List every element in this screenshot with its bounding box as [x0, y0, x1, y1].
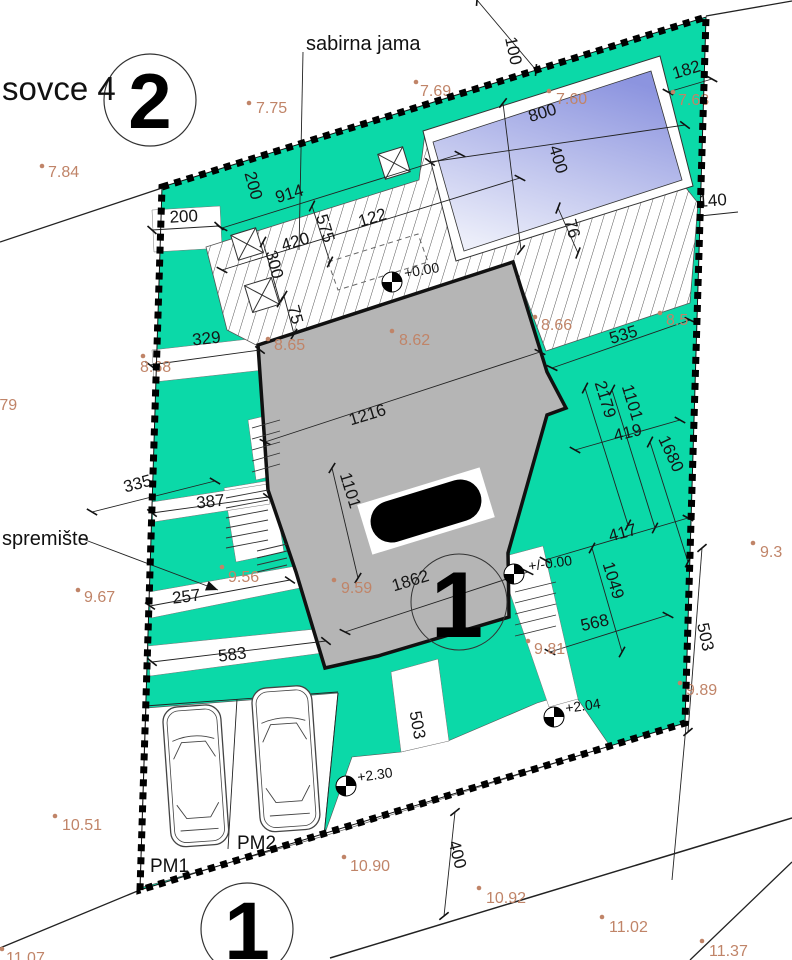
elevation-point-dot	[547, 89, 552, 94]
dimension-tick	[707, 76, 718, 82]
elevation-label: 7.75	[256, 100, 287, 117]
elevation-point-dot	[332, 578, 337, 583]
elevation-point-dot	[678, 681, 683, 686]
car-pm2	[251, 685, 321, 833]
elevation-label: 9.56	[228, 569, 259, 586]
parcel-1-bottom-number: 1	[224, 886, 270, 960]
elevation-label: 11.37	[709, 943, 748, 960]
elevation-point-dot	[671, 90, 676, 95]
elevation-label: 8.65	[274, 337, 305, 354]
elevation-label: 8.5	[666, 312, 688, 329]
elevation-point-dot	[342, 855, 347, 860]
elevation-point-dot	[533, 315, 538, 320]
elevation-label: 11.07	[6, 950, 45, 960]
dimension-label: 335	[121, 471, 153, 497]
level-marker-icon	[382, 272, 402, 292]
elevation-label: 8.66	[541, 317, 572, 334]
elevation-point-dot	[53, 814, 58, 819]
plan-line	[672, 726, 686, 880]
site-plan-canvas: +0.00+/-0.00+2.04+2.30 20020091457542012…	[0, 0, 792, 960]
elevation-point-dot	[700, 939, 705, 944]
level-marker-icon	[504, 564, 524, 584]
elevation-point-dot	[220, 565, 225, 570]
elevation-label: 8.79	[0, 397, 17, 414]
elevation-label: 7.60	[556, 91, 587, 108]
elevation-label: 7.84	[48, 164, 79, 181]
elevation-label: 10.92	[486, 890, 526, 907]
plan-line	[0, 188, 162, 242]
elevation-point-dot	[266, 337, 271, 342]
car-pm1	[162, 704, 230, 848]
elevation-point-dot	[390, 329, 395, 334]
elevation-point-dot	[526, 639, 531, 644]
site-plan-drawing: +0.00+/-0.00+2.04+2.30 20020091457542012…	[0, 0, 792, 960]
spremiste-label: spremište	[2, 528, 89, 550]
elevation-label: 10.90	[350, 858, 390, 875]
elevation-label: 9.3	[760, 544, 782, 561]
dimension-label: 257	[171, 585, 201, 607]
plan-line	[0, 890, 140, 948]
elevation-point-dot	[751, 541, 756, 546]
dimension-tick	[476, 0, 477, 6]
elevation-point-dot	[40, 164, 45, 169]
elevation-label: 9.59	[341, 580, 372, 597]
parcel-1-center-number: 1	[431, 552, 483, 657]
elevation-point-dot	[477, 886, 482, 891]
elevation-point-dot	[0, 947, 4, 952]
elevation-point-dot	[414, 80, 419, 85]
level-marker-icon	[336, 776, 356, 796]
sabirna-jama-label: sabirna jama	[306, 33, 421, 55]
dimension-label: 503	[693, 621, 717, 653]
plan-line	[700, 212, 738, 216]
street-label: sovce 4	[2, 70, 116, 107]
dimension-label: 387	[195, 491, 225, 513]
elevation-point-dot	[600, 915, 605, 920]
elevation-label: 9.81	[534, 641, 565, 658]
elevation-label: 11.02	[609, 919, 648, 936]
elevation-point-dot	[247, 101, 252, 106]
level-marker-icon	[544, 707, 564, 727]
elevation-label: 9.89	[686, 682, 717, 699]
elevation-label: 8.62	[399, 332, 430, 349]
parking-stall-pm2-label: PM2	[237, 833, 276, 854]
dimension-label: 400	[444, 838, 470, 870]
elevation-label: 9.67	[84, 589, 115, 606]
elevation-point-dot	[658, 311, 663, 316]
elevation-point-dot	[76, 588, 81, 593]
plan-line	[706, 1, 792, 16]
dimension-label: 329	[191, 328, 221, 350]
elevation-point-dot	[141, 354, 146, 359]
dimension-label: 200	[169, 206, 198, 226]
dimension-label: 100	[501, 35, 525, 67]
plan-line	[330, 818, 792, 958]
parcel-2-number: 2	[128, 57, 171, 145]
elevation-label: 7.69	[420, 83, 451, 100]
dimension-tick	[87, 509, 97, 515]
dimension-label: 583	[217, 643, 247, 665]
elevation-label: 10.51	[62, 817, 102, 834]
